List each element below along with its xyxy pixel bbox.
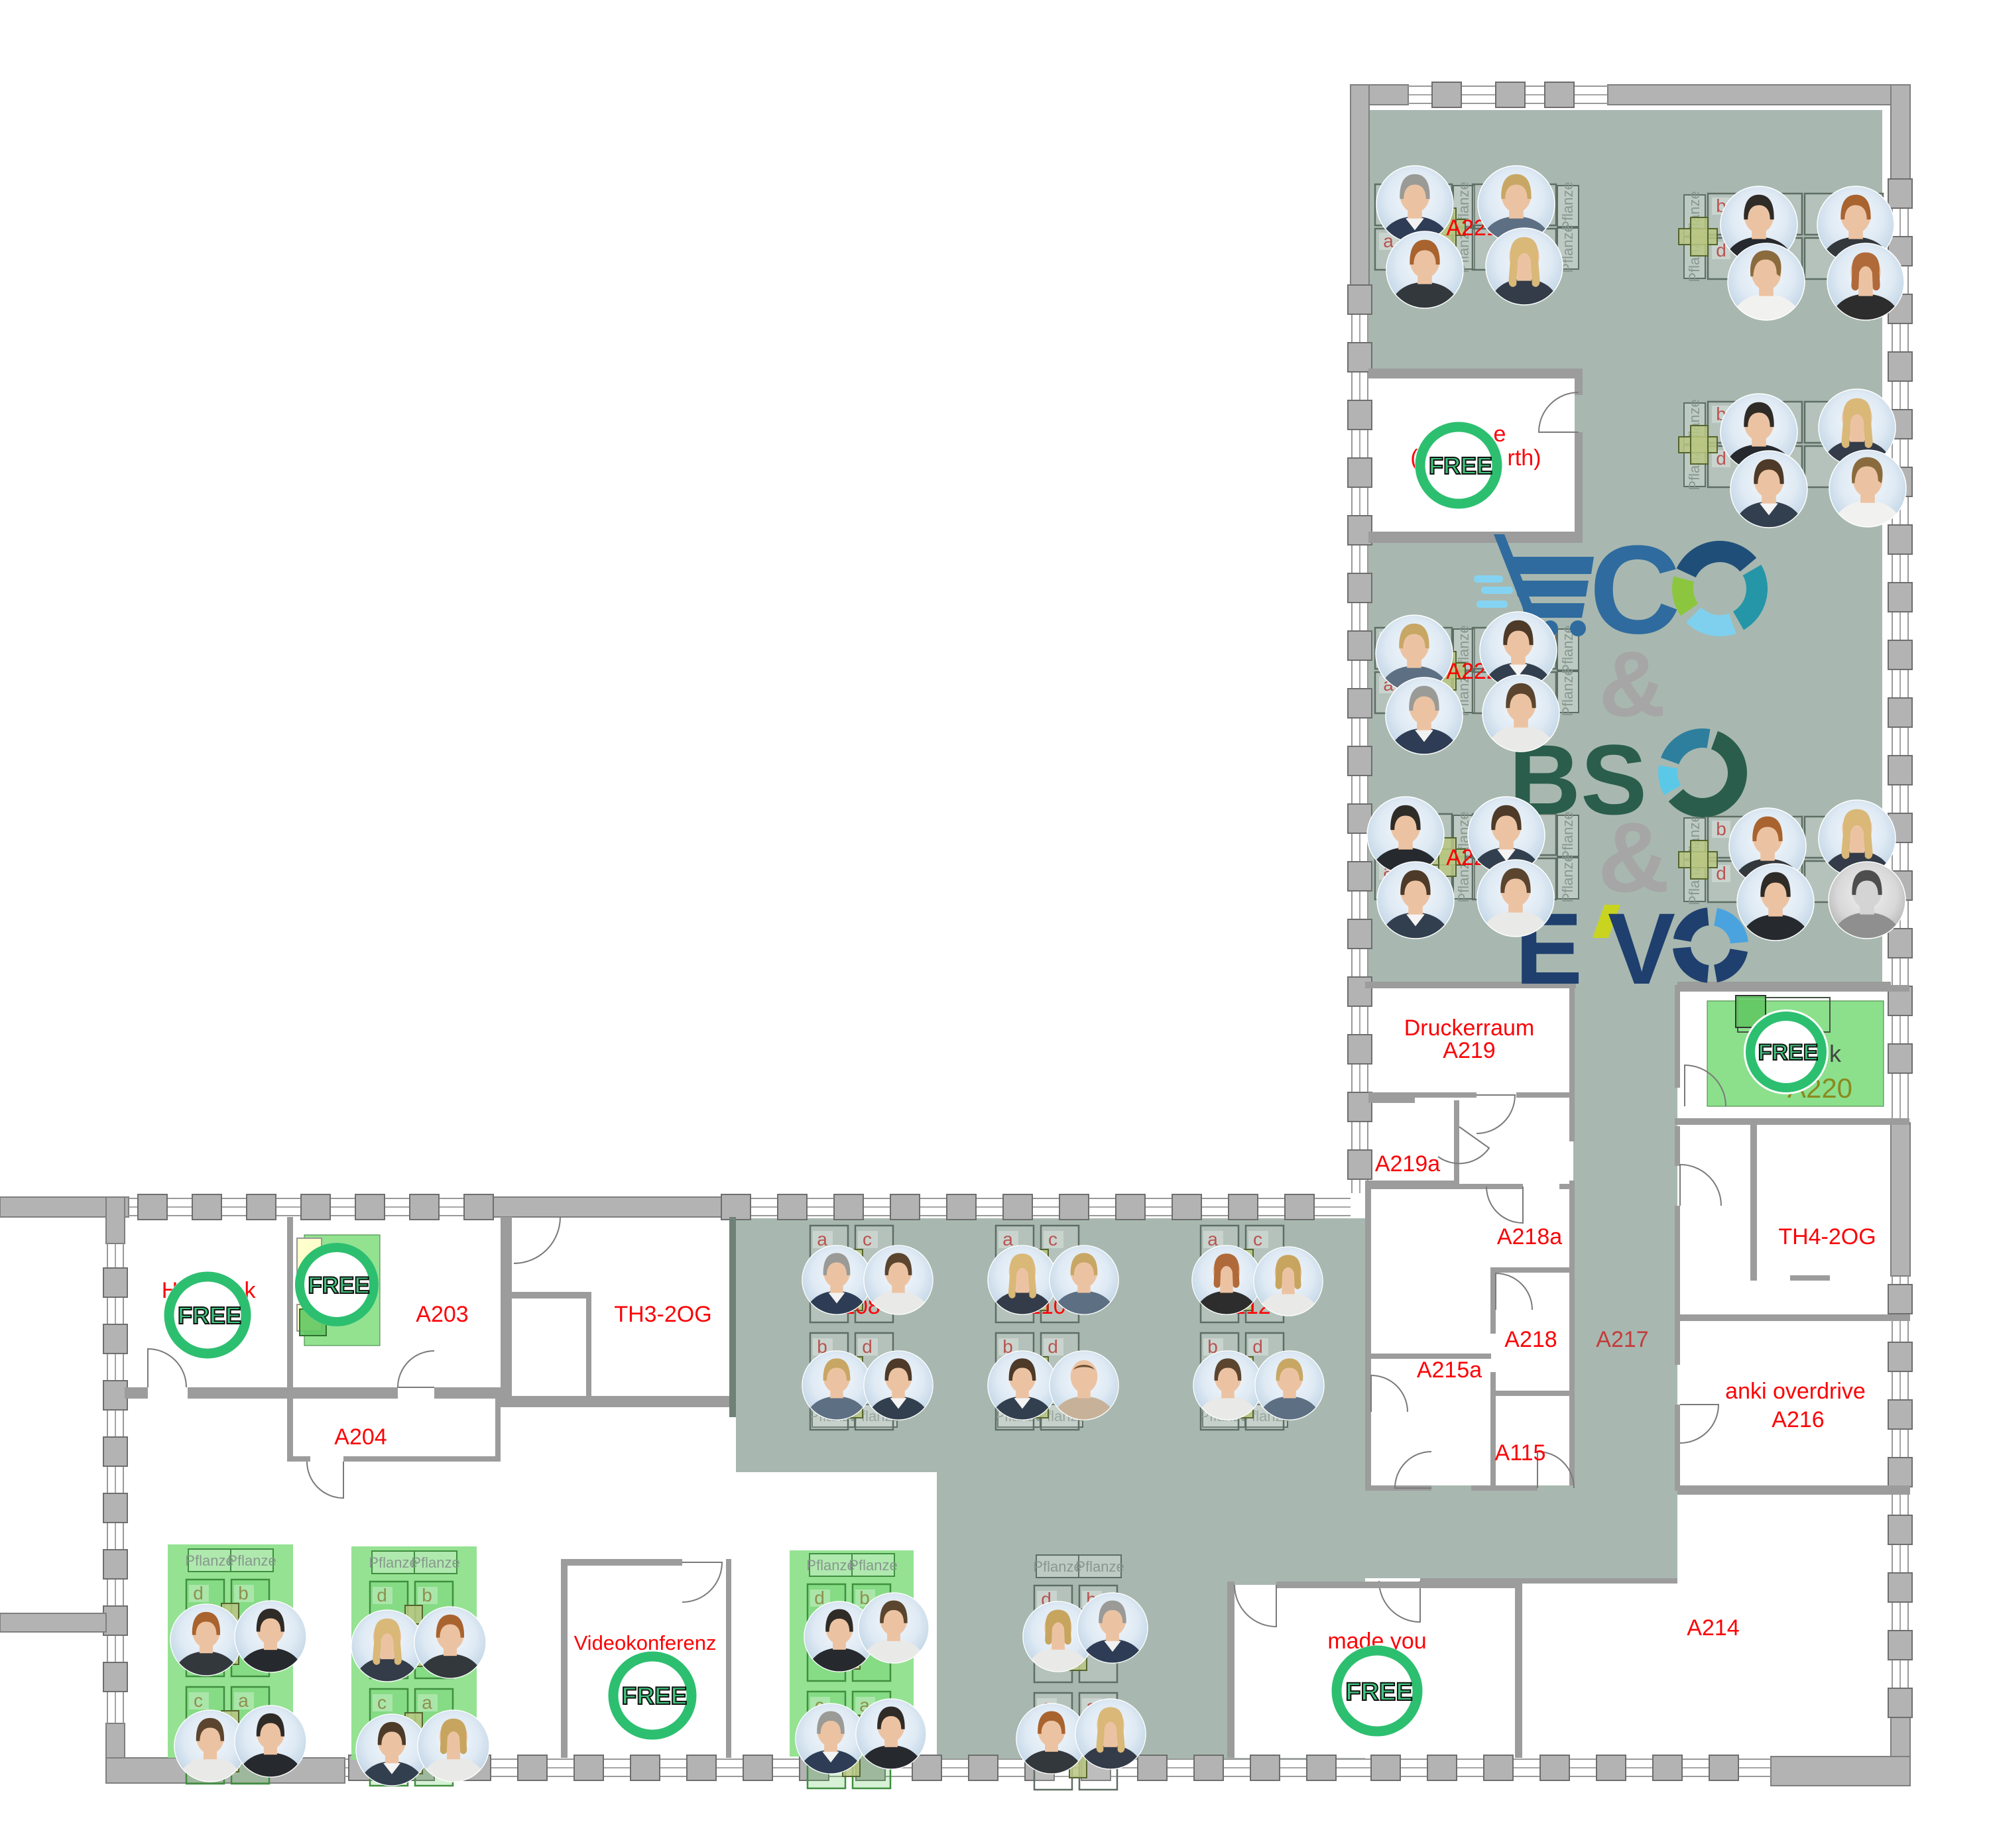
svg-text:FREE: FREE — [178, 1302, 241, 1329]
svg-text:d: d — [1048, 1336, 1058, 1357]
svg-text:d: d — [377, 1585, 387, 1605]
svg-text:Pflanze: Pflanze — [227, 1552, 276, 1569]
svg-text:Pflanze: Pflanze — [1075, 1558, 1124, 1575]
svg-text:Pflanze: Pflanze — [806, 1557, 855, 1574]
svg-text:FREE: FREE — [1345, 1678, 1412, 1706]
svg-text:Pflanze: Pflanze — [1033, 1558, 1081, 1575]
svg-text:FREE: FREE — [1429, 452, 1492, 479]
svg-text:TH4-2OG: TH4-2OG — [1778, 1224, 1876, 1249]
svg-text:a: a — [1207, 1229, 1218, 1249]
svg-text:A115: A115 — [1495, 1440, 1546, 1466]
svg-text:TH3-2OG: TH3-2OG — [614, 1302, 711, 1327]
svg-text:A219: A219 — [1443, 1038, 1495, 1063]
svg-text:V: V — [1608, 892, 1675, 1006]
svg-text:&: & — [1598, 632, 1665, 736]
svg-text:b: b — [422, 1585, 432, 1605]
svg-text:A219a: A219a — [1375, 1151, 1440, 1177]
svg-text:rth): rth) — [1508, 445, 1541, 471]
svg-text:a: a — [817, 1229, 827, 1249]
svg-text:Pflanze: Pflanze — [849, 1557, 897, 1574]
svg-text:c: c — [863, 1229, 872, 1249]
svg-text:Pflanze: Pflanze — [1559, 667, 1576, 716]
svg-text:a: a — [422, 1692, 432, 1713]
svg-text:anki overdrive: anki overdrive — [1725, 1379, 1866, 1404]
svg-text:Pflanze: Pflanze — [1559, 182, 1576, 230]
svg-text:c: c — [1253, 1229, 1262, 1249]
svg-text:a: a — [238, 1690, 249, 1711]
svg-text:A218a: A218a — [1497, 1224, 1562, 1249]
svg-text:c: c — [377, 1692, 387, 1713]
svg-text:d: d — [193, 1583, 204, 1603]
svg-text:d: d — [862, 1336, 873, 1357]
svg-text:FREE: FREE — [1758, 1040, 1819, 1065]
svg-text:A204: A204 — [334, 1424, 387, 1450]
svg-text:Druckerraum: Druckerraum — [1404, 1015, 1534, 1041]
svg-text:a: a — [1002, 1229, 1013, 1249]
svg-text:A216: A216 — [1772, 1407, 1824, 1432]
svg-text:Pflanze: Pflanze — [185, 1552, 233, 1569]
svg-text:A215a: A215a — [1417, 1357, 1482, 1383]
svg-text:Pflanze: Pflanze — [369, 1554, 417, 1571]
svg-text:FREE: FREE — [622, 1682, 688, 1709]
svg-text:A214: A214 — [1687, 1615, 1739, 1641]
svg-text:A203: A203 — [416, 1302, 468, 1327]
svg-text:c: c — [194, 1690, 203, 1711]
svg-text:c: c — [1048, 1229, 1057, 1249]
svg-text:b: b — [238, 1583, 249, 1603]
svg-text:Videokonferenz: Videokonferenz — [574, 1631, 717, 1654]
svg-text:A218: A218 — [1504, 1327, 1557, 1352]
svg-text:b: b — [1716, 819, 1726, 839]
svg-text:d: d — [1252, 1336, 1263, 1357]
svg-text:A217: A217 — [1596, 1327, 1648, 1352]
svg-text:FREE: FREE — [308, 1273, 369, 1299]
svg-text:k: k — [1829, 1040, 1842, 1067]
svg-text:Pflanze: Pflanze — [411, 1554, 459, 1571]
